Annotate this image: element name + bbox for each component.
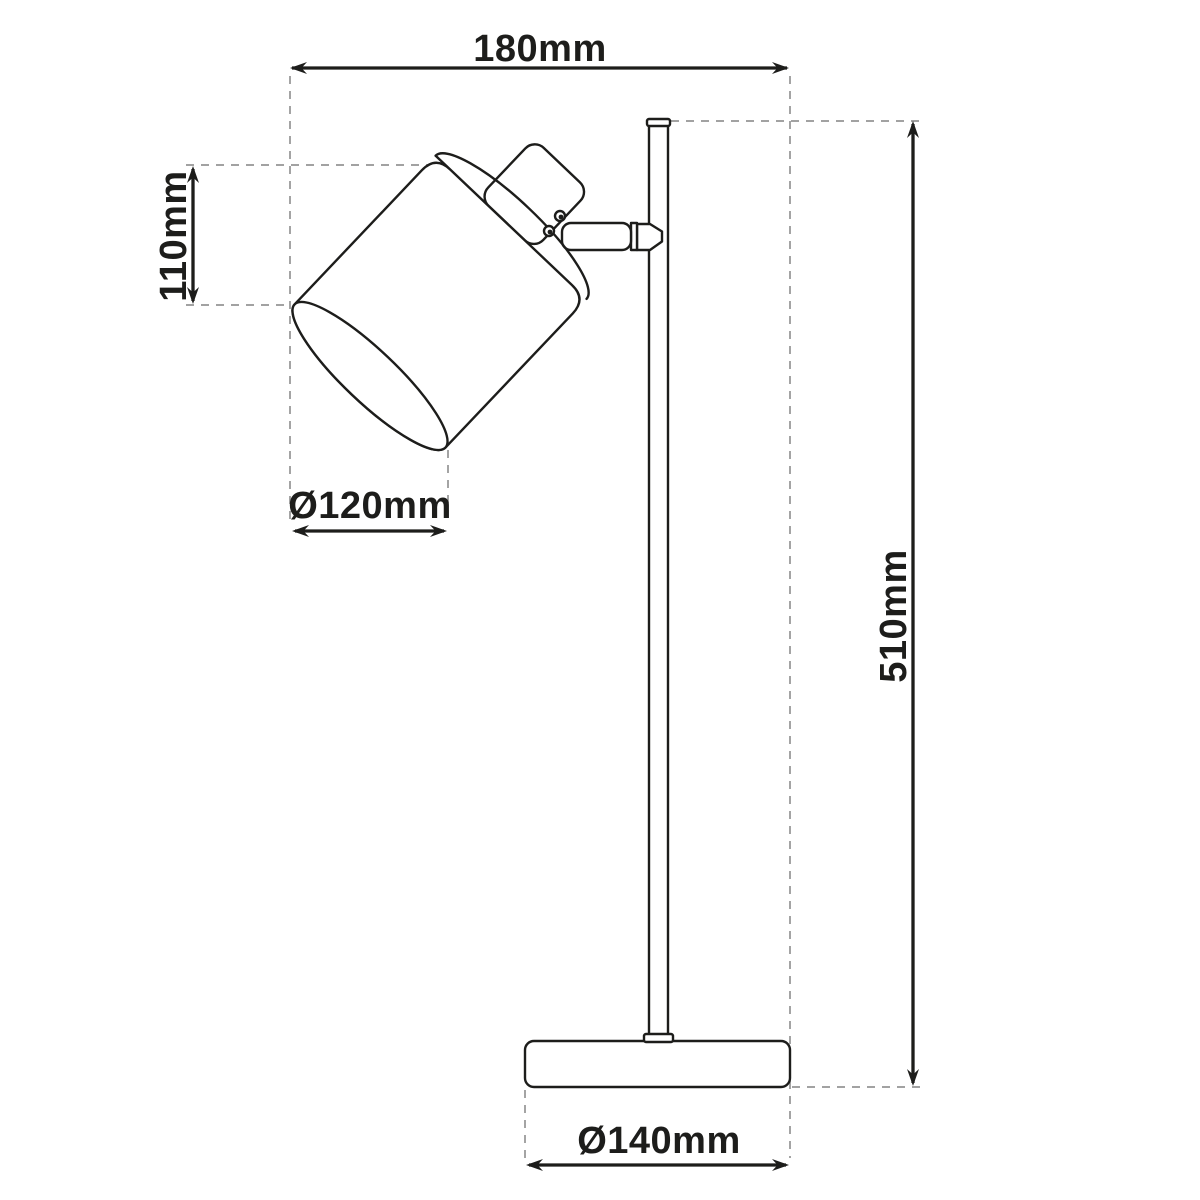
extension-lines <box>186 76 921 1158</box>
dimension-shade-diameter: Ø120mm <box>288 485 452 537</box>
dimension-base-diameter: Ø140mm <box>526 1120 789 1171</box>
pole-cap <box>647 119 670 126</box>
dimension-shade-height-label: 110mm <box>153 170 195 301</box>
hinge-pin-upper <box>559 215 564 220</box>
pole-collar <box>644 1034 673 1042</box>
hinge-pin-lower <box>548 230 553 235</box>
lamp-pole-fill <box>649 125 668 1037</box>
dimension-head-width: 180mm <box>290 28 789 74</box>
dimension-shade-diameter-label: Ø120mm <box>288 485 452 527</box>
dimension-total-height-label: 510mm <box>873 549 915 682</box>
lamp-drawing <box>277 98 790 1087</box>
dimension-shade-height: 110mm <box>153 166 199 304</box>
swivel-arm <box>562 223 631 250</box>
dimension-base-diameter-label: Ø140mm <box>577 1120 741 1162</box>
lamp-dimension-diagram: 180mm 110mm Ø120mm 510mm Ø14 <box>0 0 1200 1200</box>
dimension-head-width-label: 180mm <box>473 28 606 70</box>
lamp-base <box>525 1041 790 1087</box>
dimension-total-height: 510mm <box>873 121 919 1086</box>
lamp-head <box>277 98 642 467</box>
